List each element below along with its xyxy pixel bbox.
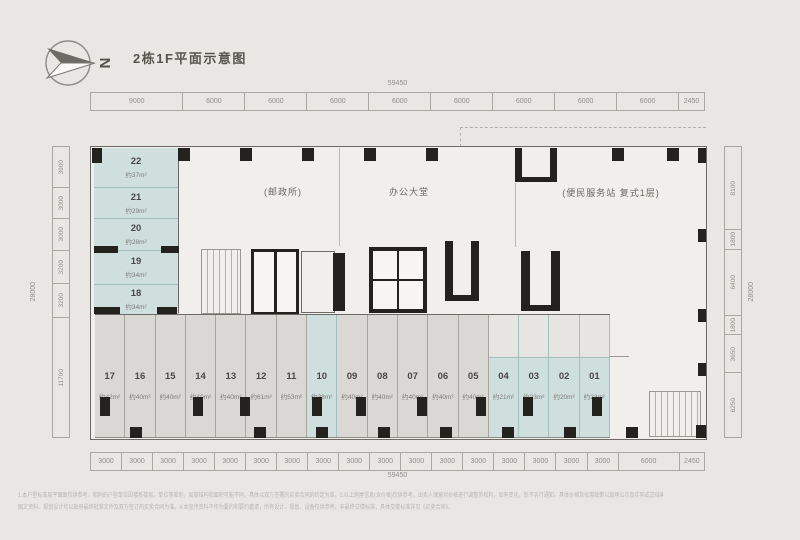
core-room [301, 251, 335, 313]
unit-area: 约61m² [250, 391, 271, 401]
elevator-cell [277, 252, 297, 312]
column [440, 427, 452, 438]
dim-segment: 3650 [725, 335, 741, 373]
column [356, 397, 366, 416]
bottom-unit-12: 12约61m² [246, 315, 276, 437]
elevator-cell [372, 250, 398, 280]
column [100, 397, 110, 416]
dim-segment: 3200 [53, 251, 69, 285]
unit-number: 06 [438, 371, 449, 382]
unit-area: 约40m² [372, 391, 393, 401]
column [626, 427, 638, 438]
bottom-unit-04: 04约21m² [489, 315, 519, 437]
unit-number: 03 [529, 371, 540, 382]
unit-number: 16 [135, 371, 146, 382]
area-label-service-station: (便民服务站 复式1层) [541, 186, 681, 199]
unit-number: 02 [559, 371, 570, 382]
dim-segment: 3000 [463, 453, 494, 470]
bottom-unit-05: 05约40m² [459, 315, 489, 437]
unit-area: 约40m² [220, 391, 241, 401]
unit-number: 04 [498, 371, 509, 382]
dim-segment: 11700 [53, 318, 69, 438]
dim-bottom-total: 59450 [90, 472, 705, 479]
dim-left-total: 28000 [30, 146, 37, 438]
column [698, 309, 706, 322]
dim-segment: 2450 [680, 453, 706, 470]
dim-segment: 3000 [90, 453, 122, 470]
bottom-unit-15: 15约40m² [156, 315, 186, 437]
dim-segment: 1800 [725, 316, 741, 335]
shear-wall [521, 251, 530, 311]
unit-number: 07 [407, 371, 418, 382]
dim-segment: 3000 [153, 453, 184, 470]
unit-number: 17 [104, 371, 115, 382]
stairs [201, 249, 241, 314]
bottom-unit-02: 02约20m² [549, 315, 579, 437]
dim-segment: 3000 [53, 219, 69, 251]
column [130, 427, 142, 438]
column [476, 397, 486, 416]
dim-segment: 3000 [525, 453, 556, 470]
column [312, 397, 322, 416]
dim-segment-label: 8100 [730, 181, 737, 195]
unit-area: 约37m² [125, 169, 146, 179]
unit-area: 约34m² [125, 269, 146, 279]
bottom-unit-14: 14约40m² [186, 315, 216, 437]
unit-number: 01 [589, 371, 600, 382]
shear-wall [471, 241, 479, 301]
elevator-bank [369, 247, 427, 313]
building-outline: 22约37m²21约29m²20约28m²19约34m²18约34m² (邮政所… [90, 146, 707, 440]
column [193, 397, 203, 416]
canopy-dashed-line [460, 127, 706, 147]
dim-segment: 3000 [401, 453, 432, 470]
column [94, 307, 120, 314]
partition-line [339, 148, 340, 246]
column [612, 148, 624, 161]
dim-segment: 3000 [122, 453, 153, 470]
dim-segment-label: 3000 [58, 227, 65, 241]
dim-segment-label: 3650 [730, 347, 737, 361]
dim-segment: 3000 [215, 453, 246, 470]
column [696, 425, 706, 438]
dim-segment: 3000 [184, 453, 215, 470]
dim-segment-label: 1800 [730, 232, 737, 246]
dim-segment-label: 11700 [58, 369, 65, 387]
column [426, 148, 438, 161]
disclaimer-line-2: 图文资料、规划设计均以政府最终批准文件及双方签订的买卖合同为准。4.本宣传资料不… [18, 502, 663, 511]
dim-segment-label: 6400 [730, 275, 737, 289]
dim-segment: 2450 [679, 93, 705, 110]
elevator-cell [398, 250, 424, 280]
unit-number: 20 [131, 223, 142, 234]
unit-number: 18 [131, 288, 142, 299]
bottom-unit-06: 06约40m² [428, 315, 458, 437]
column [316, 427, 328, 438]
page-title: 2栋1F平面示意图 [133, 48, 247, 67]
dim-segment-label: 3900 [58, 160, 65, 174]
dim-segment: 3000 [556, 453, 587, 470]
dim-segment: 3000 [246, 453, 277, 470]
dim-segment: 3200 [53, 284, 69, 318]
column [592, 397, 602, 416]
dim-segment: 6000 [307, 93, 369, 110]
unit-number: 11 [286, 371, 296, 382]
unit-area: 约34m² [125, 301, 146, 311]
dim-segment: 6000 [617, 93, 679, 110]
dim-segment: 3900 [53, 146, 69, 188]
dim-segment: 6000 [493, 93, 555, 110]
dim-segment-label: 3200 [58, 260, 65, 274]
dim-segment: 3000 [588, 453, 619, 470]
column [698, 363, 706, 376]
shear-wall [445, 241, 453, 301]
dim-segment: 3000 [277, 453, 308, 470]
unit-number: 09 [347, 371, 358, 382]
dim-segment: 6400 [725, 250, 741, 316]
elevator-cell [398, 280, 424, 310]
dim-segment: 9000 [90, 93, 183, 110]
column [240, 148, 252, 161]
dim-right-col: 810018006400180036506250 [724, 146, 742, 438]
column [378, 427, 390, 438]
unit-number: 13 [226, 371, 237, 382]
bottom-unit-09: 09约40m² [337, 315, 367, 437]
dim-right-total: 28000 [748, 146, 755, 438]
dim-segment: 3000 [308, 453, 339, 470]
elevator-cell [372, 280, 398, 310]
dim-segment: 6000 [183, 93, 245, 110]
dim-segment: 6000 [431, 93, 493, 110]
column [698, 229, 706, 242]
dim-top-row: 9000600060006000600060006000600060002450 [90, 92, 705, 111]
column [92, 148, 102, 163]
compass-n-label: N [96, 58, 113, 69]
shear-wall [550, 148, 557, 180]
shear-wall [521, 305, 560, 311]
unit-area: 约28m² [125, 236, 146, 246]
left-unit-21: 21约29m² [94, 188, 178, 219]
shear-wall [333, 253, 345, 311]
column [564, 427, 576, 438]
dim-segment-label: 3000 [58, 196, 65, 210]
floorplan-page: N 2栋1F平面示意图 59450 9000600060006000600060… [0, 0, 800, 540]
unit-area: 约29m² [125, 205, 146, 215]
column [240, 397, 250, 416]
column [364, 148, 376, 161]
unit-area: 约53m² [281, 391, 302, 401]
unit-area: 约40m² [160, 391, 181, 401]
bottom-unit-16: 16约40m² [125, 315, 155, 437]
unit-number: 05 [468, 371, 479, 382]
dim-bottom-row: 3000300030003000300030003000300030003000… [90, 452, 705, 471]
dim-top-total: 59450 [90, 80, 705, 87]
bottom-unit-13: 13约40m² [216, 315, 246, 437]
unit-number: 19 [131, 256, 142, 267]
dim-segment: 3000 [494, 453, 525, 470]
column [698, 148, 706, 163]
bottom-unit-11: 11约53m² [277, 315, 307, 437]
area-label-post-office: (邮政所) [228, 185, 338, 198]
bottom-unit-08: 08约40m² [368, 315, 398, 437]
dim-segment: 6000 [369, 93, 431, 110]
unit-area: 约20m² [553, 391, 574, 401]
dim-segment-label: 1800 [730, 318, 737, 332]
unit-number: 22 [131, 156, 142, 167]
unit-area: 约40m² [432, 391, 453, 401]
stairs [649, 391, 701, 437]
column [178, 148, 190, 161]
dim-segment: 1800 [725, 230, 741, 249]
dim-segment: 3000 [370, 453, 401, 470]
dim-segment: 8100 [725, 146, 741, 230]
column [667, 148, 679, 161]
unit-number: 12 [256, 371, 267, 382]
unit-number: 08 [377, 371, 388, 382]
dim-segment-label: 6250 [730, 398, 737, 412]
left-unit-19: 19约34m² [94, 251, 178, 285]
column [523, 397, 533, 416]
column [417, 397, 427, 416]
disclaimer-line-1: 1.本户型标准层平面图仅供参考，相同的户型单位因楼栋楼层、单位等差别，局部结构和… [18, 490, 663, 499]
column [254, 427, 266, 438]
shear-wall [551, 251, 560, 311]
dim-segment-label: 3200 [58, 293, 65, 307]
dim-segment: 6250 [725, 373, 741, 438]
area-label-lobby: 办公大堂 [354, 185, 464, 198]
bottom-unit-17: 17约42m² [95, 315, 125, 437]
shear-wall [445, 295, 479, 301]
dim-segment: 6000 [245, 93, 307, 110]
left-unit-22: 22约37m² [94, 148, 178, 188]
dim-left-col: 3900300030003200320011700 [52, 146, 70, 438]
elevator-bank [251, 249, 299, 315]
unit-number: 10 [316, 371, 327, 382]
column [302, 148, 314, 161]
column [94, 246, 118, 253]
dim-segment: 3000 [432, 453, 463, 470]
unit-number: 21 [131, 192, 142, 203]
bottom-unit-10: 10约38m² [307, 315, 337, 437]
shear-wall [515, 148, 522, 180]
unit-area: 约40m² [129, 391, 150, 401]
dim-segment: 6000 [555, 93, 617, 110]
unit-number: 15 [165, 371, 176, 382]
column [502, 427, 514, 438]
wall-line [178, 148, 179, 313]
left-units-block: 22约37m²21约29m²20约28m²19约34m²18约34m² [94, 148, 179, 314]
dim-segment: 3000 [339, 453, 370, 470]
bottom-unit-07: 07约40m² [398, 315, 428, 437]
column [161, 246, 179, 253]
dim-segment: 6000 [619, 453, 680, 470]
bottom-unit-03: 03约23m² [519, 315, 549, 437]
column [157, 307, 177, 314]
shear-wall [515, 177, 557, 182]
unit-number: 14 [195, 371, 206, 382]
elevator-cell [254, 252, 277, 312]
partition-line [515, 183, 516, 247]
bottom-unit-01: 01约23m² [580, 315, 610, 437]
unit-area: 约21m² [493, 391, 514, 401]
dim-segment: 3000 [53, 188, 69, 220]
bottom-units-band: 17约42m²16约40m²15约40m²14约40m²13约40m²12约61… [95, 314, 610, 438]
